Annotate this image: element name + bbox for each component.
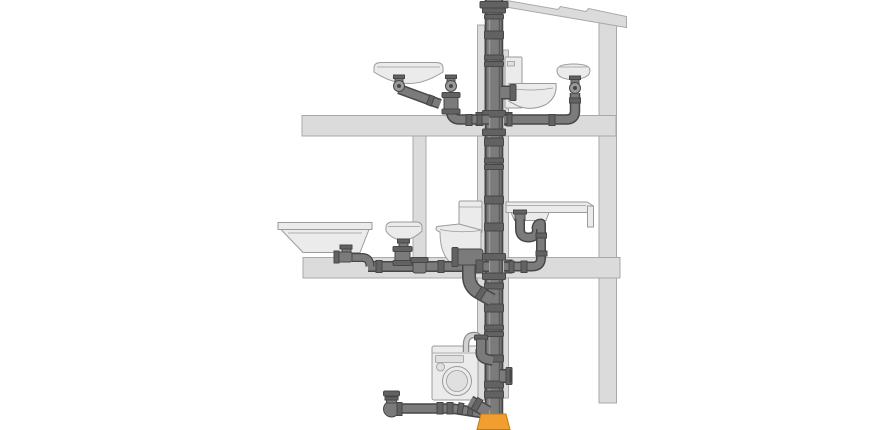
roof-beam — [503, 0, 627, 28]
pipe-coupling — [536, 233, 547, 238]
pipe-coupling — [466, 115, 472, 126]
roof-vent-stack — [480, 2, 508, 9]
fixtures — [278, 57, 594, 400]
drainage-system-diagram — [0, 0, 870, 430]
drainage-diagram-stage — [0, 0, 870, 430]
pipe-coupling — [485, 283, 504, 289]
pipe-coupling — [485, 138, 504, 146]
pipe-coupling — [438, 261, 444, 273]
stack-side-outlet — [500, 368, 513, 385]
washbasin-upper-left-icon — [374, 63, 443, 84]
lower-branch-right — [504, 210, 547, 273]
pipe-coupling — [485, 158, 504, 163]
cleanout-cap — [384, 391, 400, 396]
pipe-coupling — [509, 261, 514, 273]
right-wall — [599, 19, 617, 403]
bathtub-icon — [278, 223, 372, 253]
pipe-coupling — [376, 261, 382, 273]
pipe-coupling — [477, 115, 482, 125]
pipe-coupling — [447, 403, 453, 415]
pipe-coupling — [485, 223, 504, 231]
pipe-coupling — [521, 261, 527, 273]
pipe-coupling — [485, 391, 504, 398]
upper-toilet-branch — [501, 85, 516, 101]
washing-machine-icon — [432, 346, 478, 400]
underground-transition-socket — [477, 414, 510, 430]
pipe-coupling — [485, 55, 504, 60]
pipe-coupling — [507, 114, 512, 126]
pipe-coupling — [570, 98, 581, 103]
basement-end-fitting — [384, 391, 403, 417]
interior-wall — [413, 136, 426, 258]
pipe-coupling — [485, 325, 504, 330]
pipe-coupling — [549, 115, 555, 126]
pipe-coupling — [536, 251, 547, 256]
pipe-coupling — [485, 165, 504, 170]
pipe-coupling — [485, 62, 504, 67]
pipe-coupling — [485, 196, 504, 204]
pipe-coupling — [485, 31, 504, 39]
pipe-coupling — [437, 403, 443, 415]
